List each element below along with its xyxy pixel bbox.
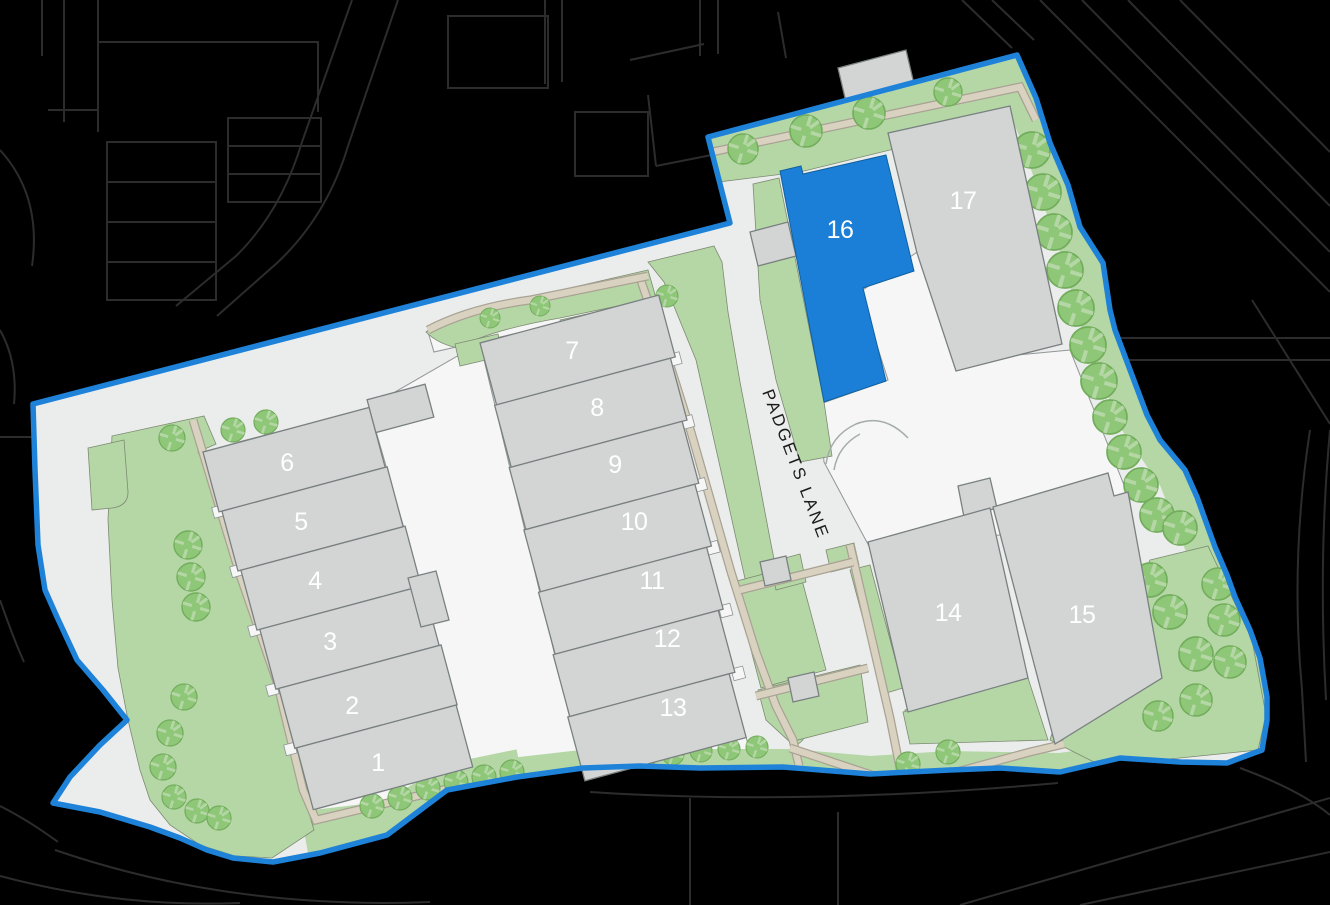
unit-2-label: 2 <box>345 692 358 720</box>
site-plan-stage: 1 2 3 4 5 6 7 8 9 10 11 12 13 14 15 16 1… <box>0 0 1330 905</box>
unit-9-label: 9 <box>608 451 621 479</box>
unit-8-label: 8 <box>590 394 603 422</box>
unit-17-label: 17 <box>950 187 977 215</box>
unit-11-label: 11 <box>640 567 665 595</box>
green-entrance-island-a <box>88 440 128 510</box>
site-plan-map: 1 2 3 4 5 6 7 8 9 10 11 12 13 14 15 16 1… <box>0 0 1330 905</box>
unit-1-label: 1 <box>371 749 384 777</box>
unit-13-label: 13 <box>660 694 687 722</box>
unit-3-label: 3 <box>323 628 336 656</box>
unit-6-label: 6 <box>280 449 293 477</box>
unit-14-label: 14 <box>935 599 962 627</box>
unit-16-label: 16 <box>827 216 854 244</box>
unit-4-label: 4 <box>308 567 322 595</box>
unit-10-label: 10 <box>621 508 648 536</box>
unit-15-label: 15 <box>1069 601 1096 629</box>
unit-7-label: 7 <box>565 337 578 365</box>
unit-5-label: 5 <box>294 508 307 536</box>
unit-12-label: 12 <box>654 625 681 653</box>
